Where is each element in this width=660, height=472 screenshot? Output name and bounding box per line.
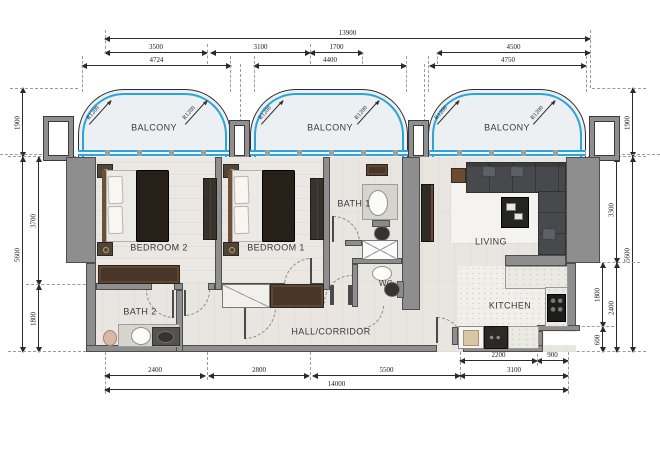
wall-right-flank <box>566 157 600 263</box>
extension-line <box>437 52 438 64</box>
pillow <box>108 176 124 205</box>
extension-line <box>82 56 83 92</box>
window-mullions <box>78 150 586 156</box>
extension-line <box>105 352 106 394</box>
throw-pillow <box>510 165 525 177</box>
kitchen-counter-top <box>505 266 568 289</box>
extension-line <box>207 352 208 380</box>
extension-line <box>406 56 407 92</box>
wall-bedroom2-bottom-b <box>174 283 183 290</box>
exterior-notch <box>544 332 576 345</box>
cooktop <box>547 294 566 322</box>
extension-line <box>8 351 86 352</box>
room-label-balcony-2: BALCONY <box>307 124 353 133</box>
kitchen-counter-bottom <box>508 326 539 349</box>
hall-closet <box>222 284 270 308</box>
dim-right-1800: 1800 <box>602 263 603 327</box>
entrance-door-leaf <box>436 317 438 343</box>
extension-line <box>310 352 311 380</box>
extension-line <box>586 56 587 92</box>
extension-line <box>537 354 538 366</box>
wall-bedroom1-bath1 <box>323 157 330 290</box>
pillow <box>234 206 250 235</box>
wall-kitchen-top <box>505 255 566 266</box>
bath2-door-leaf <box>172 290 174 318</box>
kitchen-cabinet <box>458 326 484 349</box>
dim-kitchen-w: 2200 <box>460 360 537 361</box>
extension-line <box>428 56 429 92</box>
coffee-table <box>501 197 529 228</box>
washing-machine <box>362 240 398 260</box>
dim-left-1800: 1800 <box>38 285 39 352</box>
wardrobe <box>310 178 324 240</box>
extension-line <box>10 88 78 89</box>
room-label-bath1: BATH 1 <box>337 200 370 209</box>
wall-left-flank <box>66 157 96 263</box>
dim-right-3300: 3300 <box>616 157 617 263</box>
cabinet-inset <box>463 330 479 346</box>
room-label-kitchen: KITCHEN <box>489 302 531 311</box>
dim-right-600: 600 <box>602 327 603 352</box>
extension-line <box>362 52 363 64</box>
sofa-chaise <box>538 191 566 255</box>
room-label-wc: WC <box>379 280 393 288</box>
toilet <box>374 226 390 241</box>
room-label-living: LIVING <box>475 238 507 247</box>
throw-pillow <box>482 165 497 177</box>
room-label-bedroom1: BEDROOM 1 <box>247 244 305 253</box>
extension-line <box>230 56 231 92</box>
nightstand <box>97 242 113 256</box>
extension-line <box>310 44 311 64</box>
dim-balcony-a: 4724 <box>82 65 231 66</box>
bath2-lamp <box>103 330 117 346</box>
wall-bedroom2-bottom-a <box>96 283 152 290</box>
bedroom1-door-leaf <box>310 258 312 284</box>
wall-left-lower <box>86 263 96 352</box>
shower-fixture <box>366 164 388 176</box>
side-table <box>451 168 466 183</box>
bed-duvet <box>262 170 295 242</box>
dim-left-1900: 1900 <box>22 88 23 157</box>
dim-top-b: 3100 <box>211 52 310 53</box>
room-label-balcony-3: BALCONY <box>484 124 530 133</box>
dim-top-total: 13900 <box>105 38 590 39</box>
column <box>590 117 619 160</box>
extension-line <box>207 44 208 64</box>
floor-plan-sheet: 13900 3500 3100 1700 4500 4724 4400 4750… <box>0 0 660 472</box>
dim-right-5600: 5600 <box>632 157 633 352</box>
window-wall <box>78 150 586 156</box>
dim-right-1900: 1900 <box>632 88 633 157</box>
room-label-bath2: BATH 2 <box>123 308 156 317</box>
room-label-bedroom2: BEDROOM 2 <box>130 244 188 253</box>
extension-line <box>590 30 591 88</box>
wall-wc-left <box>352 264 358 307</box>
dim-right-2400: 2400 <box>616 263 617 352</box>
tv-console <box>421 184 434 242</box>
extension-line <box>460 352 461 380</box>
column <box>409 121 428 160</box>
extension-line <box>592 88 646 89</box>
dim-top-c: 1700 <box>310 52 363 53</box>
wall-shaft <box>402 157 420 310</box>
dim-bot-b: 2800 <box>209 375 309 376</box>
dim-left-3700: 3700 <box>38 157 39 285</box>
throw-pillow <box>542 227 557 240</box>
room-label-hall: HALL/CORRIDOR <box>291 328 370 337</box>
extension-line <box>582 326 614 327</box>
bath2-sink <box>131 327 151 345</box>
extension-line <box>568 352 569 394</box>
table-item <box>514 213 523 220</box>
dim-bot-total: 14000 <box>105 389 568 390</box>
grid-line <box>622 154 660 155</box>
dim-notch-w: 900 <box>537 360 568 361</box>
hall-door-leaf <box>244 307 246 339</box>
kitchen-appliance <box>484 326 508 349</box>
pillow <box>234 176 250 205</box>
nightstand <box>223 242 239 256</box>
column <box>230 121 249 160</box>
pillow <box>108 206 124 235</box>
dim-bot-d: 3100 <box>460 375 568 376</box>
wall-bedroom2-bottom-c <box>208 283 215 290</box>
bedroom2-door-leaf <box>184 290 186 316</box>
dim-bot-c: 5500 <box>313 375 460 376</box>
dim-balcony-b: 4400 <box>254 65 406 66</box>
extension-line <box>105 30 106 54</box>
wardrobe <box>203 178 217 240</box>
dresser <box>98 265 180 284</box>
bath1-door-leaf <box>332 216 334 242</box>
bed-duvet <box>136 170 169 242</box>
table-item <box>506 203 516 211</box>
bath2-basin <box>157 331 174 343</box>
column <box>44 117 73 160</box>
dim-top-a: 3500 <box>105 52 207 53</box>
hall-console <box>270 284 324 308</box>
bath1-sink <box>368 190 388 216</box>
room-label-balcony-1: BALCONY <box>131 124 177 133</box>
extension-line <box>254 56 255 92</box>
grid-line <box>0 154 42 155</box>
dim-left-5600: 5600 <box>22 157 23 352</box>
dim-balcony-c: 4750 <box>430 65 586 66</box>
dim-top-d: 4500 <box>437 52 590 53</box>
dim-bot-a: 2400 <box>105 375 205 376</box>
